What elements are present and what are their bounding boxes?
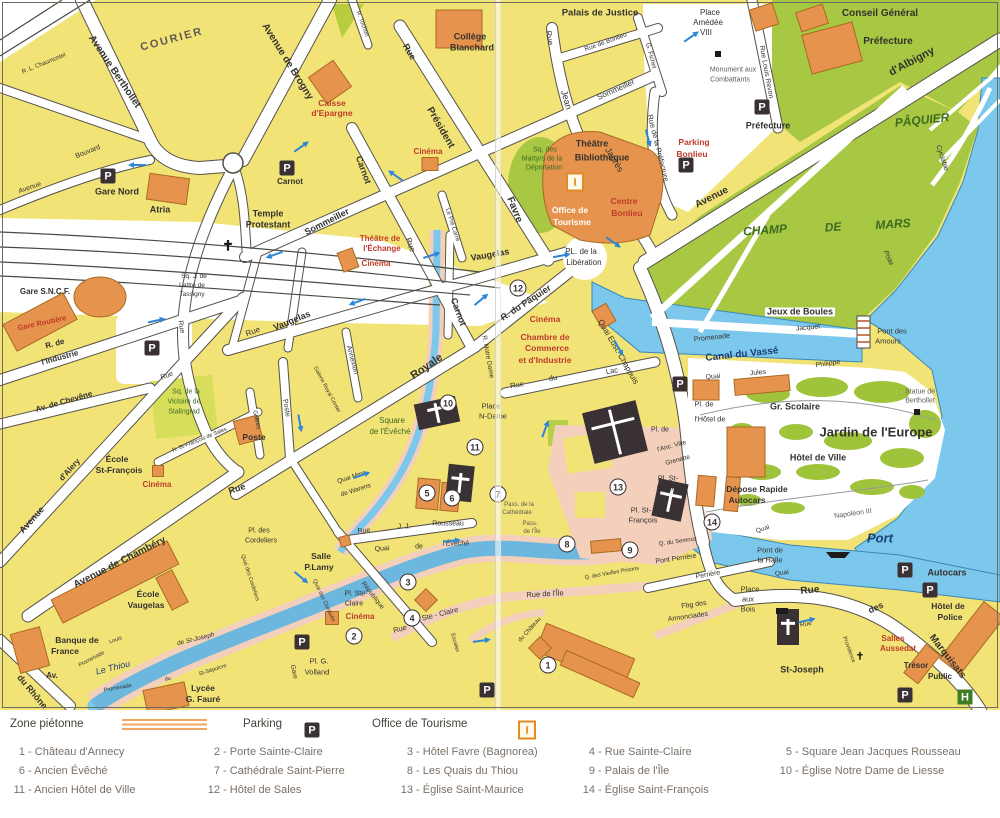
poi-number-badge: 4 xyxy=(404,610,421,627)
map-label: Quai xyxy=(374,545,389,553)
map-label: Lac xyxy=(605,366,618,375)
map-label: Gare Nord xyxy=(95,188,139,197)
poi-number-badge: 2 xyxy=(346,628,363,645)
map-fold-crease xyxy=(495,0,501,710)
map-legend: Zone piétonne Parking P Office de Touris… xyxy=(0,712,1000,742)
map-label: Statue de xyxy=(905,389,935,396)
map-label: Sq. de la xyxy=(172,389,200,396)
map-label: Collège xyxy=(454,33,487,42)
map-label: Berthollet xyxy=(905,398,935,405)
map-label: de l'Île xyxy=(523,529,540,535)
map-label: Place xyxy=(741,585,760,593)
index-item-number: 11 xyxy=(8,784,25,796)
pedestrian-zone-swatch xyxy=(122,719,207,732)
map-label: Bonlieu xyxy=(611,209,642,218)
map-label: Préfecture xyxy=(746,122,791,131)
index-item-name: - Église Saint-Maurice xyxy=(413,784,524,796)
map-label: Palais de Justice xyxy=(562,8,639,18)
map-label: Cathédrale xyxy=(502,510,531,516)
map-label: Public xyxy=(928,673,952,681)
index-item-name: - Palais de l'Île xyxy=(595,765,669,777)
map-label: Aussedat xyxy=(880,645,916,653)
poi-number-badge: 9 xyxy=(622,542,639,559)
map-label: Vaugelas xyxy=(128,601,165,610)
index-item-name: - Église Notre Dame de Liesse xyxy=(792,765,944,777)
map-label: Autocars xyxy=(729,496,766,505)
parking-icon: P xyxy=(101,169,116,184)
map-label: Port xyxy=(867,532,893,545)
index-item-name: - Église Saint-François xyxy=(595,784,709,796)
index-item-name: - Cathédrale Saint-Pierre xyxy=(220,765,345,777)
map-label: Rue xyxy=(357,527,370,535)
map-label: Police xyxy=(937,613,962,622)
map-label: Dépose Rapide xyxy=(726,485,787,494)
index-item-name: - Square Jean Jacques Rousseau xyxy=(792,746,961,758)
map-label: St-François xyxy=(96,466,143,475)
map-label: Rousseau xyxy=(432,521,464,528)
map-label: St-Joseph xyxy=(780,666,824,675)
map-label: Sq. J. de xyxy=(181,274,207,281)
map-label: l'Échange xyxy=(363,245,400,253)
map-label: Victoire de xyxy=(168,399,201,406)
map-label: Théâtre xyxy=(576,140,609,149)
map-label: Tourisme xyxy=(553,218,591,227)
map-label: Gare S.N.C.F. xyxy=(20,288,70,296)
map-label: aux xyxy=(742,595,754,603)
map-label: Protestant xyxy=(246,221,291,230)
map-label: Tassigny xyxy=(179,292,204,299)
map-label: Carnot xyxy=(277,178,303,186)
parking-icon: P xyxy=(673,377,688,392)
poi-number-badge: 11 xyxy=(467,439,484,456)
index-item: 3 - Hôtel Favre (Bagnorea) xyxy=(396,746,538,758)
poi-number-badge: 12 xyxy=(510,280,527,297)
map-label: Banque de xyxy=(55,636,98,645)
map-label: Combattants xyxy=(710,77,750,84)
tourism-office-icon: I xyxy=(566,173,584,192)
annecy-city-map: COURIERAvenue BertholletR. L. Chaumontel… xyxy=(0,0,1000,818)
index-item-number: 7 xyxy=(203,765,220,777)
index-item: 12 - Hôtel de Sales xyxy=(203,784,301,796)
parking-icon: P xyxy=(480,683,495,698)
map-label: MARS xyxy=(875,217,911,231)
index-item: 10 - Église Notre Dame de Liesse xyxy=(775,765,944,777)
parking-icon: P xyxy=(923,583,938,598)
map-label: École xyxy=(137,590,160,599)
index-item-name: - Ancien Évêché xyxy=(25,765,108,777)
map-label: Pont de xyxy=(757,546,783,554)
map-label: Conseil Général xyxy=(842,9,918,19)
map-label: Pl. de xyxy=(694,400,713,408)
map-label: Square xyxy=(379,417,405,425)
index-item: 6 - Ancien Évêché xyxy=(8,765,108,777)
map-label: Salles xyxy=(881,635,904,643)
map-label: Blanchard xyxy=(450,44,494,53)
index-item-number: 14 xyxy=(578,784,595,796)
map-label: Amédée xyxy=(693,19,723,27)
church-cross-icon: ✝ xyxy=(222,238,234,255)
map-label: Place xyxy=(700,9,720,17)
poi-number-badge: 10 xyxy=(440,395,457,412)
parking-icon: P xyxy=(755,100,770,115)
map-label: Préfecture xyxy=(863,37,912,47)
index-item-number: 9 xyxy=(578,765,595,777)
tourism-office-icon: I xyxy=(518,721,536,740)
map-label: Pl. des xyxy=(248,528,269,535)
index-item-number: 3 xyxy=(396,746,413,758)
map-label: Martyrs de la xyxy=(522,156,562,163)
map-label: Monument aux xyxy=(710,67,756,74)
map-label: l'Hôtel de xyxy=(694,415,725,423)
legend-parking-label: Parking xyxy=(243,718,282,730)
poi-number-badge: 8 xyxy=(559,536,576,553)
map-label: Lycée xyxy=(191,684,215,693)
map-label: Amours xyxy=(875,337,901,345)
poi-number-badge: 5 xyxy=(419,485,436,502)
index-item-number: 8 xyxy=(396,765,413,777)
map-label: Hôtel de Ville xyxy=(790,454,846,463)
index-item-name: - Hôtel Favre (Bagnorea) xyxy=(413,746,538,758)
map-label: France xyxy=(51,647,79,656)
map-label: Atria xyxy=(150,206,171,215)
map-label: Autocars xyxy=(927,569,966,578)
map-label: Commerce xyxy=(525,344,569,353)
map-label: Pass. xyxy=(522,521,537,527)
index-item: 8 - Les Quais du Thiou xyxy=(396,765,518,777)
index-item: 13 - Église Saint-Maurice xyxy=(396,784,524,796)
index-item-name: - Rue Sainte-Claire xyxy=(595,746,692,758)
map-label: la Halle xyxy=(757,556,782,564)
map-label: Cinéma xyxy=(362,260,391,268)
map-label: Cinéma xyxy=(143,481,172,489)
parking-icon: P xyxy=(295,635,310,650)
index-item-number: 1 xyxy=(8,746,25,758)
poi-number-badge: 1 xyxy=(540,657,557,674)
map-label: Pl. St- xyxy=(658,474,678,482)
map-label: Pass. de la xyxy=(504,502,534,508)
map-label: J. J. xyxy=(398,524,411,531)
map-label: François xyxy=(629,516,658,524)
index-item: 9 - Palais de l'Île xyxy=(578,765,669,777)
poi-number-badge: 14 xyxy=(704,514,721,531)
index-item: 14 - Église Saint-François xyxy=(578,784,709,796)
map-label: Parking xyxy=(678,138,709,147)
map-label: de xyxy=(415,544,423,551)
index-item: 5 - Square Jean Jacques Rousseau xyxy=(775,746,961,758)
map-label: Quai xyxy=(705,373,720,381)
poi-number-badge: 3 xyxy=(400,574,417,591)
map-label: Hôtel de xyxy=(931,602,965,611)
index-item: 2 - Porte Sainte-Claire xyxy=(203,746,323,758)
map-label: Salle xyxy=(311,552,331,561)
index-item-number: 6 xyxy=(8,765,25,777)
index-item: 1 - Château d'Annecy xyxy=(8,746,124,758)
map-label: Stalingrad xyxy=(168,409,200,416)
index-item-number: 10 xyxy=(775,765,792,777)
map-label: Centre xyxy=(611,197,638,206)
map-label: Théâtre de xyxy=(360,235,400,243)
map-label: Cinéma xyxy=(530,315,561,324)
legend-zone-pietonne-label: Zone piétonne xyxy=(10,718,84,730)
map-label: Jardin de l'Europe xyxy=(820,426,933,439)
map-label: Pont des xyxy=(877,327,907,335)
index-item-name: - Les Quais du Thiou xyxy=(413,765,518,777)
map-label: Pl. St- xyxy=(631,506,651,514)
church-cross-icon: ✝ xyxy=(856,652,864,663)
index-item: 4 - Rue Sainte-Claire xyxy=(578,746,692,758)
map-label: G. Fauré xyxy=(186,695,220,704)
index-item-number: 13 xyxy=(396,784,413,796)
map-label: Temple xyxy=(253,210,284,219)
parking-icon: P xyxy=(280,161,295,176)
map-label: Chambre de xyxy=(520,333,569,342)
map-label: Jules xyxy=(750,369,767,377)
map-label: Caisse xyxy=(318,99,345,108)
map-label: et d'Industrie xyxy=(518,356,571,365)
map-label: d'Epargne xyxy=(311,109,352,118)
parking-icon: P xyxy=(145,341,160,356)
map-label: N-Dame xyxy=(479,412,507,420)
map-label: Cinéma xyxy=(414,148,443,156)
parking-icon: P xyxy=(898,563,913,578)
index-item-name: - Hôtel de Sales xyxy=(220,784,301,796)
legend-office-label: Office de Tourisme xyxy=(372,718,467,730)
index-item-number: 2 xyxy=(203,746,220,758)
map-label: Claire xyxy=(345,601,363,608)
map-label: Bois xyxy=(741,605,756,613)
poi-number-badge: 13 xyxy=(610,479,627,496)
map-label: Office de xyxy=(552,206,588,215)
map-label: Sq. des xyxy=(533,147,557,154)
index-item-name: - Porte Sainte-Claire xyxy=(220,746,323,758)
index-item-name: - Ancien Hôtel de Ville xyxy=(25,784,135,796)
parking-icon: P xyxy=(679,158,694,173)
parking-icon: P xyxy=(305,723,320,738)
map-label: de l'Évêché xyxy=(369,428,410,436)
map-label: Bibliothèque xyxy=(575,154,630,163)
index-item-number: 4 xyxy=(578,746,595,758)
map-label: Rue de l'Île xyxy=(526,589,564,598)
map-label: Pl. de xyxy=(651,427,669,434)
map-label: du xyxy=(548,374,558,383)
map-label: VIII xyxy=(700,29,712,37)
map-label: Rue xyxy=(800,585,820,597)
map-label: Jeux de Boules xyxy=(765,308,835,317)
map-label: Lattre de xyxy=(179,283,205,290)
map-label: Gr. Scolaire xyxy=(770,403,820,412)
poi-number-badge: 6 xyxy=(444,490,461,507)
map-label: CHAMP xyxy=(743,222,788,237)
map-label: Maurice xyxy=(657,484,684,492)
index-item-name: - Château d'Annecy xyxy=(25,746,124,758)
map-label: Volland xyxy=(305,668,330,676)
map-label: du xyxy=(165,677,172,683)
map-label: Cinéma xyxy=(346,613,375,621)
index-item: 7 - Cathédrale Saint-Pierre xyxy=(203,765,345,777)
map-label: Poste xyxy=(242,433,265,442)
parking-icon: P xyxy=(898,688,913,703)
map-label: DE xyxy=(824,220,841,233)
map-canvas: COURIERAvenue BertholletR. L. Chaumontel… xyxy=(0,0,1000,710)
map-label: P.Lamy xyxy=(304,563,333,572)
map-label: Trésor xyxy=(904,662,928,670)
index-item-number: 12 xyxy=(203,784,220,796)
map-label: École xyxy=(106,455,129,464)
map-label: Pl. Ste- xyxy=(345,591,368,598)
map-label: Av. xyxy=(46,672,58,680)
traffic-direction-arrow-icon xyxy=(133,164,146,166)
map-label: Cordeliers xyxy=(245,538,277,545)
map-label: Rue xyxy=(544,30,554,46)
index-item-number: 5 xyxy=(775,746,792,758)
map-label: Libération xyxy=(566,259,601,267)
hospital-icon: H xyxy=(958,690,973,705)
index-item: 11 - Ancien Hôtel de Ville xyxy=(8,784,135,796)
map-label: Pl. G. xyxy=(310,657,329,665)
map-label: Déportation xyxy=(526,165,562,172)
